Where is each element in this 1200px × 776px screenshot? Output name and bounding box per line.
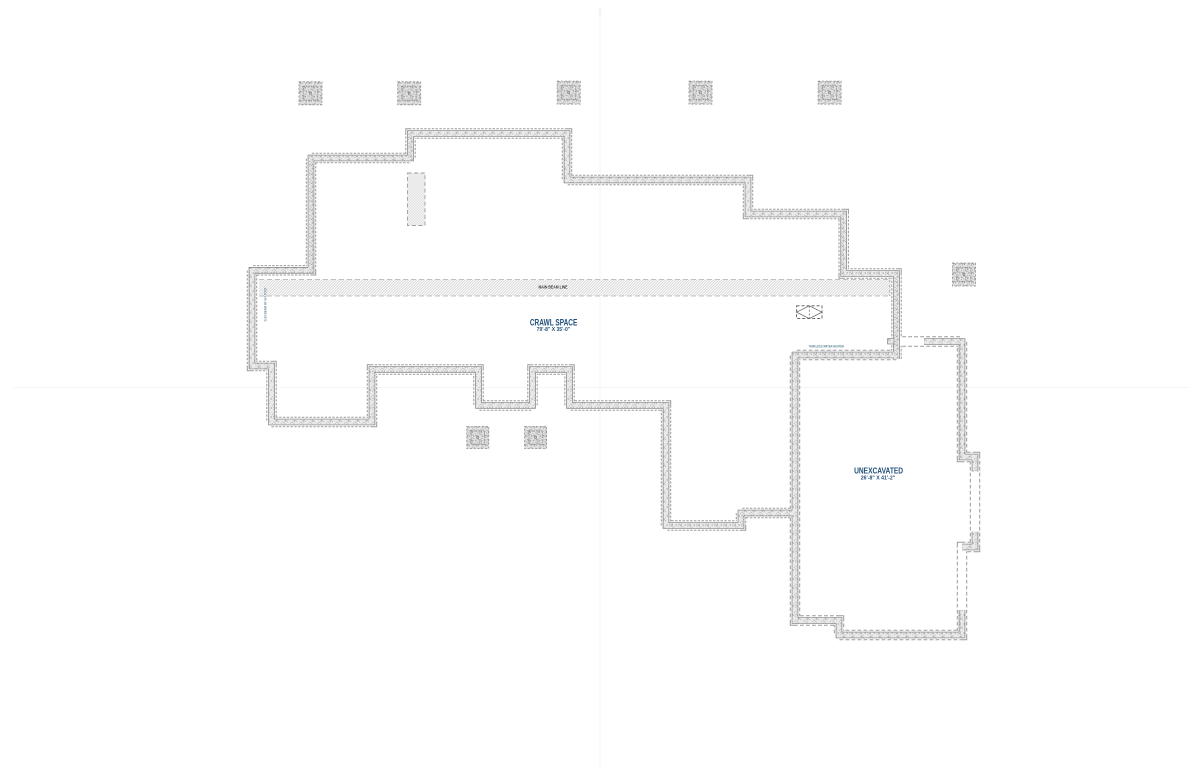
svg-text:79'-8" X 35'-0": 79'-8" X 35'-0" <box>537 327 571 333</box>
svg-text:MAIN BEAM LINE: MAIN BEAM LINE <box>539 285 568 290</box>
svg-text:2x10 BEAM W/ 4x4 POST: 2x10 BEAM W/ 4x4 POST <box>264 288 268 322</box>
svg-text:26'-8" X 41'-2": 26'-8" X 41'-2" <box>861 475 896 481</box>
svg-text:CRAWL SPACE: CRAWL SPACE <box>530 318 578 328</box>
svg-text:UNEXCAVATED: UNEXCAVATED <box>854 466 903 475</box>
svg-text:16x16: 16x16 <box>822 349 833 353</box>
svg-text:TANKLESS WATER HEATER: TANKLESS WATER HEATER <box>808 345 844 349</box>
